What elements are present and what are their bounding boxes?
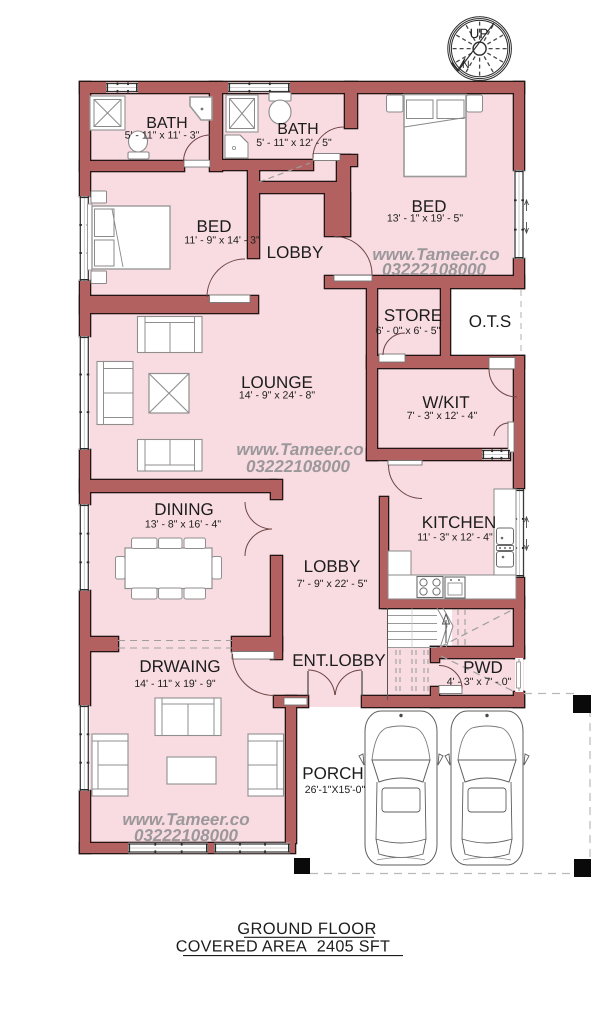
svg-text:6' - 0" x 6' - 5": 6' - 0" x 6' - 5" xyxy=(376,325,441,337)
svg-text:COVERED AREA 2405 SFT: COVERED AREA 2405 SFT xyxy=(176,938,390,956)
svg-text:03222108000: 03222108000 xyxy=(246,457,351,476)
svg-text:PWD: PWD xyxy=(463,658,503,677)
svg-text:O.T.S: O.T.S xyxy=(469,312,512,331)
svg-text:4' - 3" x 7' - 0": 4' - 3" x 7' - 0" xyxy=(447,676,512,688)
svg-text:N: N xyxy=(462,59,470,71)
svg-text:03222108000: 03222108000 xyxy=(382,260,487,279)
svg-text:PORCH: PORCH xyxy=(302,764,363,783)
svg-text:11' - 3" x 12' - 4": 11' - 3" x 12' - 4" xyxy=(417,532,493,544)
svg-text:13' - 8" x 16' - 4": 13' - 8" x 16' - 4" xyxy=(145,519,222,531)
svg-text:5' - 11" x 12' - 5": 5' - 11" x 12' - 5" xyxy=(256,137,332,149)
svg-text:BED: BED xyxy=(197,217,232,236)
svg-text:GROUND FLOOR: GROUND FLOOR xyxy=(237,920,377,938)
svg-text:26'-1"X15'-0": 26'-1"X15'-0" xyxy=(305,784,366,796)
svg-text:KITCHEN: KITCHEN xyxy=(422,513,497,532)
svg-text:14' - 11" x 19' - 9": 14' - 11" x 19' - 9" xyxy=(134,678,216,690)
svg-text:7' - 9" x 22' - 5": 7' - 9" x 22' - 5" xyxy=(297,578,368,590)
svg-text:7' - 3" x 12' - 4": 7' - 3" x 12' - 4" xyxy=(407,410,478,422)
svg-text:13' - 1" x 19' - 5": 13' - 1" x 19' - 5" xyxy=(387,213,464,225)
svg-text:LOBBY: LOBBY xyxy=(267,243,324,262)
svg-text:STORE: STORE xyxy=(384,306,442,325)
svg-text:BATH: BATH xyxy=(277,121,318,138)
svg-text:11' - 9" x 14' - 3": 11' - 9" x 14' - 3" xyxy=(184,235,260,247)
svg-text:UP: UP xyxy=(470,26,489,41)
svg-text:5' - 11" x 11' - 3": 5' - 11" x 11' - 3" xyxy=(125,130,200,142)
svg-text:03222108000: 03222108000 xyxy=(134,826,239,845)
svg-text:ENT.LOBBY: ENT.LOBBY xyxy=(292,651,386,670)
svg-text:14' - 9" x 24' - 8": 14' - 9" x 24' - 8" xyxy=(239,390,316,402)
svg-text:DINING: DINING xyxy=(154,500,214,519)
svg-text:LOBBY: LOBBY xyxy=(304,557,361,576)
svg-text:DRWAING: DRWAING xyxy=(139,657,220,676)
